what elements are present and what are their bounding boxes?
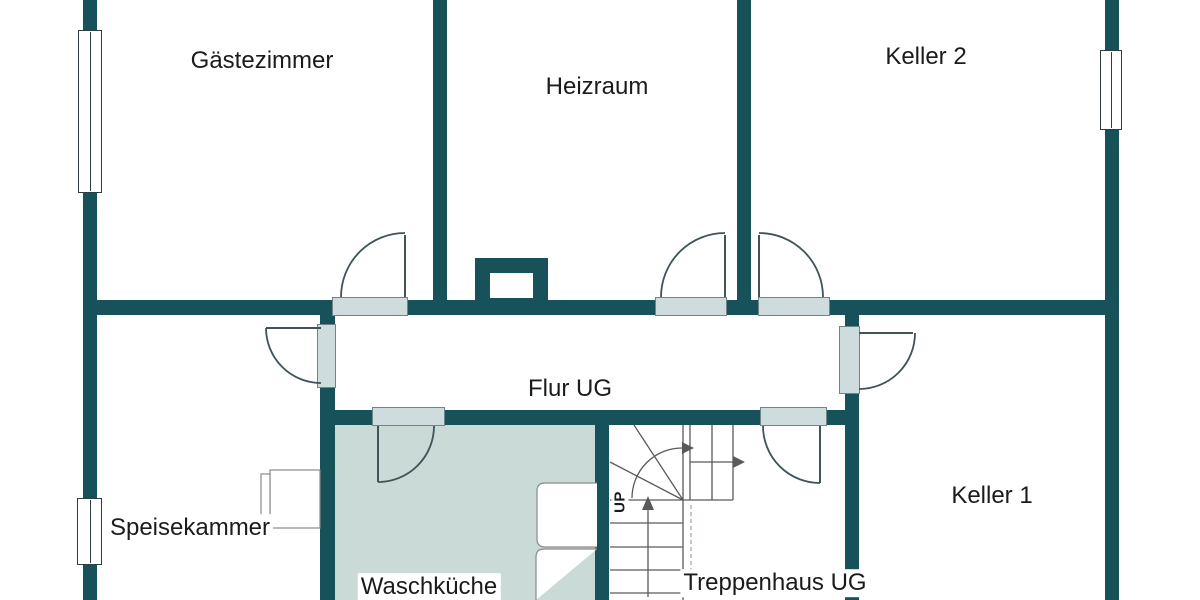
door-arc-waschkueche [378, 426, 434, 482]
door-arc-heizraum [661, 233, 725, 297]
stair-arrow-turn [682, 442, 694, 454]
stair-arrow-exit [733, 456, 745, 468]
waschkueche-appliance-2 [536, 549, 597, 600]
room-label-flur: Flur UG [525, 375, 615, 403]
door-arc-treppenhaus [763, 426, 820, 483]
stair-up-label: UP [612, 489, 629, 515]
stair-walkline-turn [632, 448, 682, 498]
speisekammer-shelf [270, 470, 320, 528]
waschkueche-appliance-1 [537, 483, 597, 547]
door-arc-keller2 [759, 233, 823, 297]
door-arc-gaestezimmer [341, 233, 405, 297]
stair-arrow-up [642, 496, 654, 510]
room-label-keller1: Keller 1 [948, 482, 1035, 510]
room-label-gaestezimmer: Gästezimmer [188, 47, 337, 75]
door-arc-speisekammer [266, 328, 321, 383]
room-label-waschkueche: Waschküche [358, 573, 501, 600]
floor-plan-canvas: Gästezimmer Heizraum Keller 2 Flur UG Sp… [0, 0, 1200, 600]
room-label-treppenhaus: Treppenhaus UG [680, 569, 869, 597]
room-label-keller2: Keller 2 [882, 43, 969, 71]
door-arc-keller1 [859, 333, 915, 389]
room-label-speisekammer: Speisekammer [107, 514, 273, 542]
stair-winder-tread [634, 425, 683, 500]
room-label-heizraum: Heizraum [543, 73, 652, 101]
